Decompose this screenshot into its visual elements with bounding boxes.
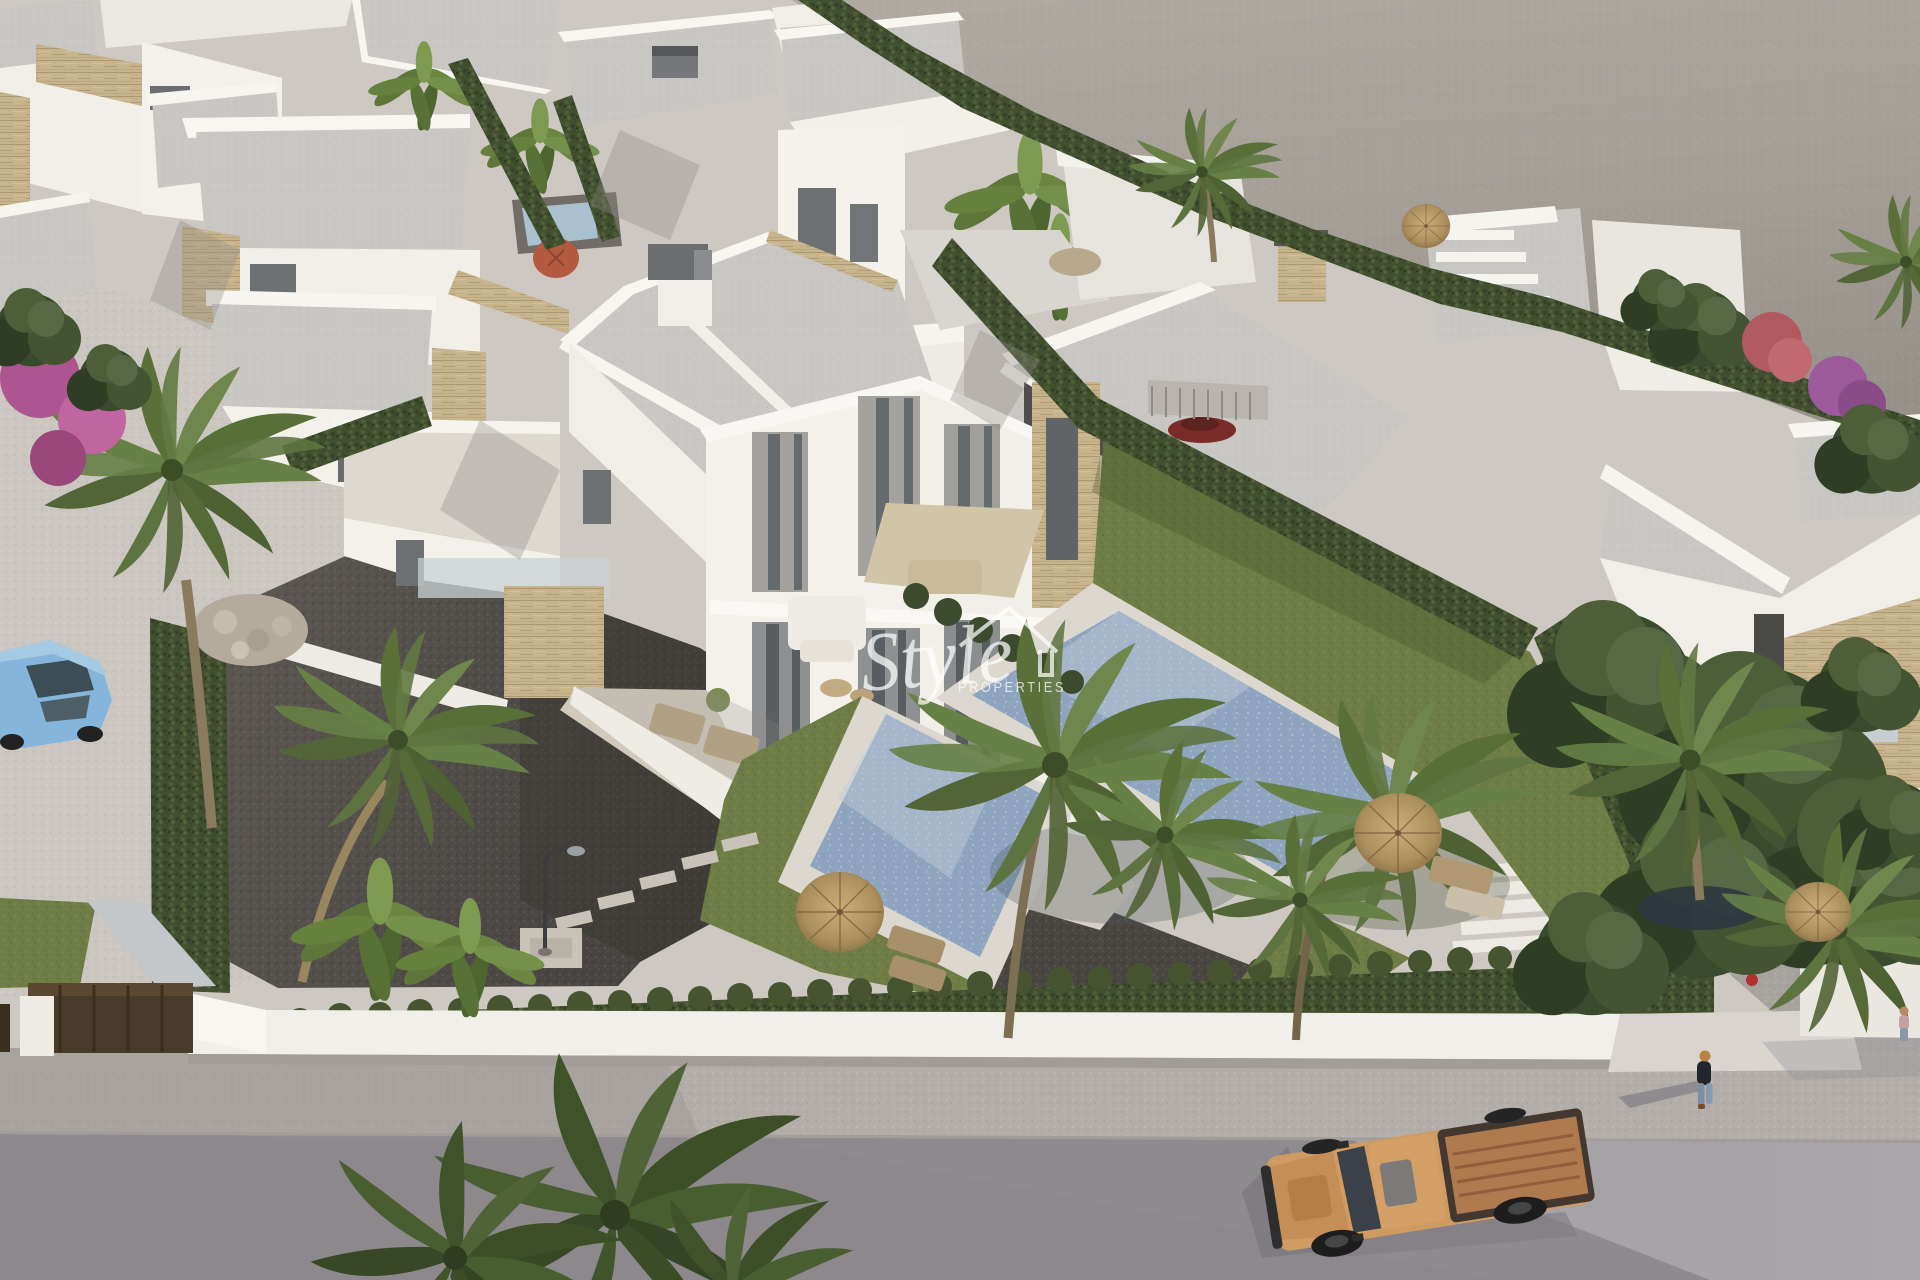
svg-text:PROPERTIES: PROPERTIES bbox=[958, 679, 1066, 696]
